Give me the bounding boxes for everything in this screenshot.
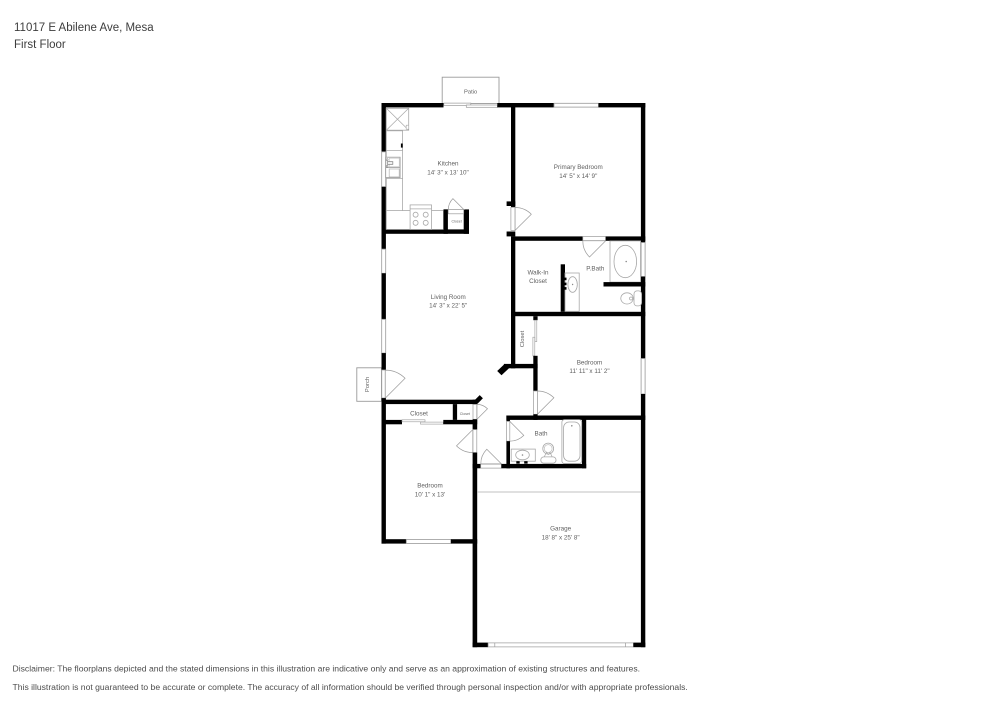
svg-text:Garage: Garage [550, 526, 572, 533]
svg-text:Patio: Patio [464, 89, 477, 95]
svg-text:14' 3" x 22' 5": 14' 3" x 22' 5" [429, 303, 467, 310]
svg-text:18' 8" x 25' 8": 18' 8" x 25' 8" [542, 534, 580, 541]
svg-text:Disclaimer: The floorplans dep: Disclaimer: The floorplans depicted and … [13, 664, 641, 674]
svg-text:Closet: Closet [460, 412, 470, 416]
svg-text:Kitchen: Kitchen [437, 161, 459, 168]
svg-text:11017 E Abilene Ave, Mesa: 11017 E Abilene Ave, Mesa [14, 22, 154, 34]
svg-text:14' 3" x 13' 10": 14' 3" x 13' 10" [427, 169, 469, 176]
svg-text:Closet: Closet [529, 278, 547, 285]
svg-text:Walk-In: Walk-In [527, 269, 549, 276]
svg-text:11' 11" x 11' 2": 11' 11" x 11' 2" [569, 368, 609, 375]
svg-text:Closet: Closet [410, 411, 428, 418]
svg-text:Bath: Bath [535, 430, 548, 437]
svg-text:Closet: Closet [520, 330, 526, 347]
svg-text:Primary Bedroom: Primary Bedroom [554, 164, 603, 171]
svg-text:Bedroom: Bedroom [417, 483, 443, 490]
svg-text:Closet: Closet [452, 219, 462, 223]
svg-text:This illustration is not guara: This illustration is not guaranteed to b… [13, 682, 688, 692]
svg-text:10' 1" x 13': 10' 1" x 13' [415, 491, 446, 498]
svg-text:P.Bath: P.Bath [586, 266, 605, 273]
svg-text:Living Room: Living Room [431, 294, 466, 301]
svg-text:Porch: Porch [365, 377, 371, 392]
svg-text:Bedroom: Bedroom [577, 359, 603, 366]
svg-text:14' 5" x 14' 9": 14' 5" x 14' 9" [559, 173, 597, 180]
svg-text:First Floor: First Floor [14, 39, 66, 51]
